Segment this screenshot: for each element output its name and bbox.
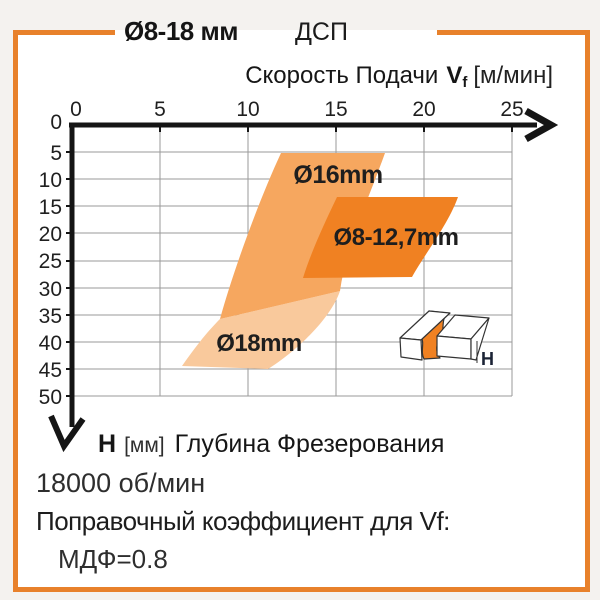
y-axis-unit: [мм] (124, 434, 165, 457)
band-16mm-label: Ø16mm (293, 161, 382, 189)
x-tick-label: 25 (500, 98, 523, 121)
band-18mm-label: Ø18mm (216, 330, 302, 357)
y-tick-label: 25 (39, 250, 62, 273)
y-tick-label: 5 (50, 142, 62, 165)
depth-label: H (481, 349, 494, 369)
y-axis-variable: H (98, 430, 116, 458)
x-tick-label: 20 (412, 98, 435, 121)
spindle-speed-note: 18000 об/мин (36, 468, 205, 499)
x-tick-label: 10 (236, 98, 259, 121)
correction-factor-value: МДФ=0.8 (58, 544, 168, 575)
correction-factor-title: Поправочный коэффициент для Vf: (36, 506, 450, 537)
band-8-127mm-label: Ø8-12,7mm (334, 224, 459, 251)
y-tick-label: 50 (39, 386, 62, 409)
y-tick-label: 30 (39, 278, 62, 301)
y-tick-label: 15 (39, 196, 62, 219)
y-tick-label: 40 (39, 332, 62, 355)
y-tick-label: 20 (39, 223, 62, 246)
milling-depth-pictogram: H (400, 311, 494, 369)
y-axis-title-text: Глубина Фрезерования (175, 430, 445, 458)
y-tick-label: 10 (39, 169, 62, 192)
workpiece-left-front (400, 338, 422, 360)
x-tick-label: 0 (70, 98, 82, 121)
y-tick-label: 0 (50, 111, 62, 134)
y-tick-labels: 0 5 10 15 20 25 30 35 40 45 50 (39, 111, 62, 409)
x-tick-label: 5 (154, 98, 166, 121)
y-axis-arrow (51, 416, 83, 446)
x-tick-labels: 0 5 10 15 20 25 (70, 98, 524, 121)
workpiece-right-front (437, 336, 471, 359)
x-tick-label: 15 (324, 98, 347, 121)
y-axis-title: H[мм]Глубина Фрезерования (98, 430, 444, 459)
y-tick-label: 45 (39, 359, 62, 382)
y-tick-label: 35 (39, 305, 62, 328)
